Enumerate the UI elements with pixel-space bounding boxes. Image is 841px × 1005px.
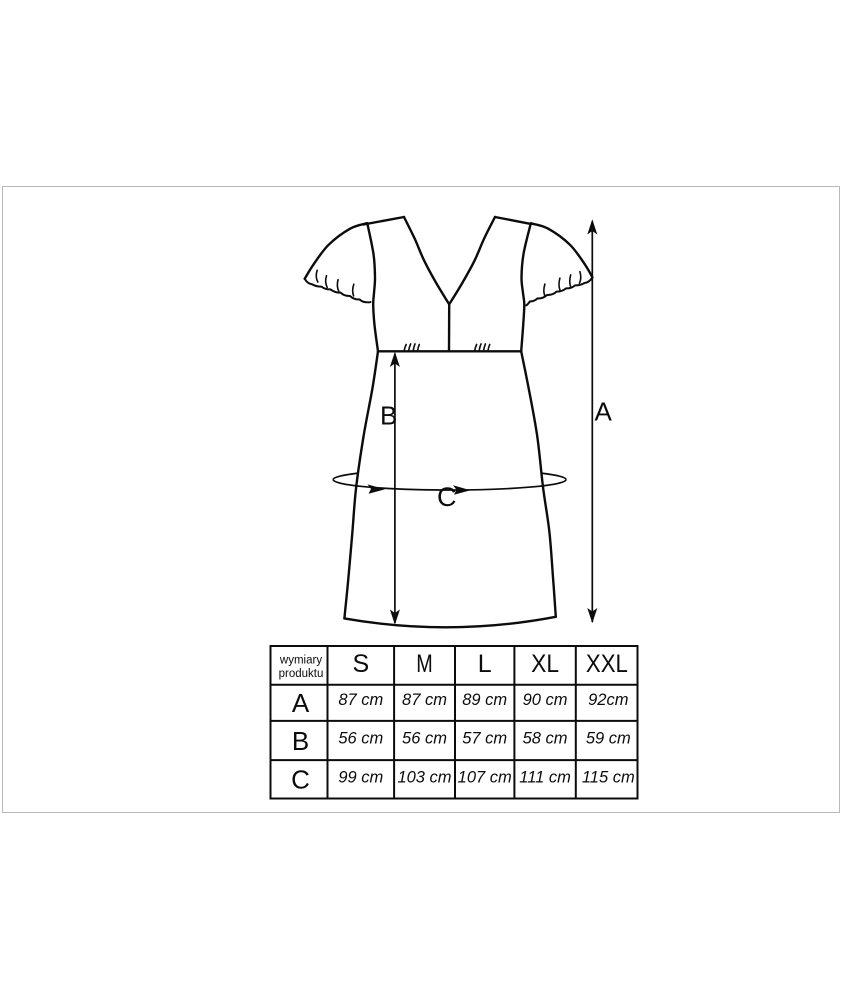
svg-text:115 cm: 115 cm	[582, 768, 635, 786]
svg-text:B: B	[380, 401, 397, 431]
svg-text:90 cm: 90 cm	[523, 691, 568, 709]
svg-text:56 cm: 56 cm	[338, 730, 383, 748]
svg-text:A: A	[595, 397, 613, 427]
svg-text:92cm: 92cm	[588, 691, 628, 709]
svg-text:89 cm: 89 cm	[462, 691, 507, 709]
svg-text:C: C	[437, 482, 457, 512]
svg-text:56 cm: 56 cm	[402, 730, 447, 748]
svg-text:A: A	[292, 688, 310, 718]
svg-text:103 cm: 103 cm	[397, 768, 451, 786]
svg-text:107 cm: 107 cm	[458, 768, 512, 786]
svg-text:87 cm: 87 cm	[402, 691, 447, 709]
svg-text:59 cm: 59 cm	[586, 730, 631, 748]
svg-text:wymiary: wymiary	[279, 655, 322, 667]
svg-text:L: L	[478, 650, 492, 678]
svg-text:B: B	[292, 726, 309, 756]
svg-text:111 cm: 111 cm	[519, 768, 571, 786]
svg-text:XXL: XXL	[586, 650, 628, 678]
svg-text:58 cm: 58 cm	[523, 730, 568, 748]
svg-text:57 cm: 57 cm	[462, 730, 507, 748]
svg-text:99 cm: 99 cm	[338, 768, 383, 786]
svg-text:produktu: produktu	[279, 668, 324, 680]
svg-text:87 cm: 87 cm	[338, 691, 383, 709]
svg-text:C: C	[291, 765, 310, 795]
svg-text:S: S	[352, 650, 369, 678]
svg-text:XL: XL	[531, 650, 559, 678]
svg-text:M: M	[416, 650, 433, 678]
